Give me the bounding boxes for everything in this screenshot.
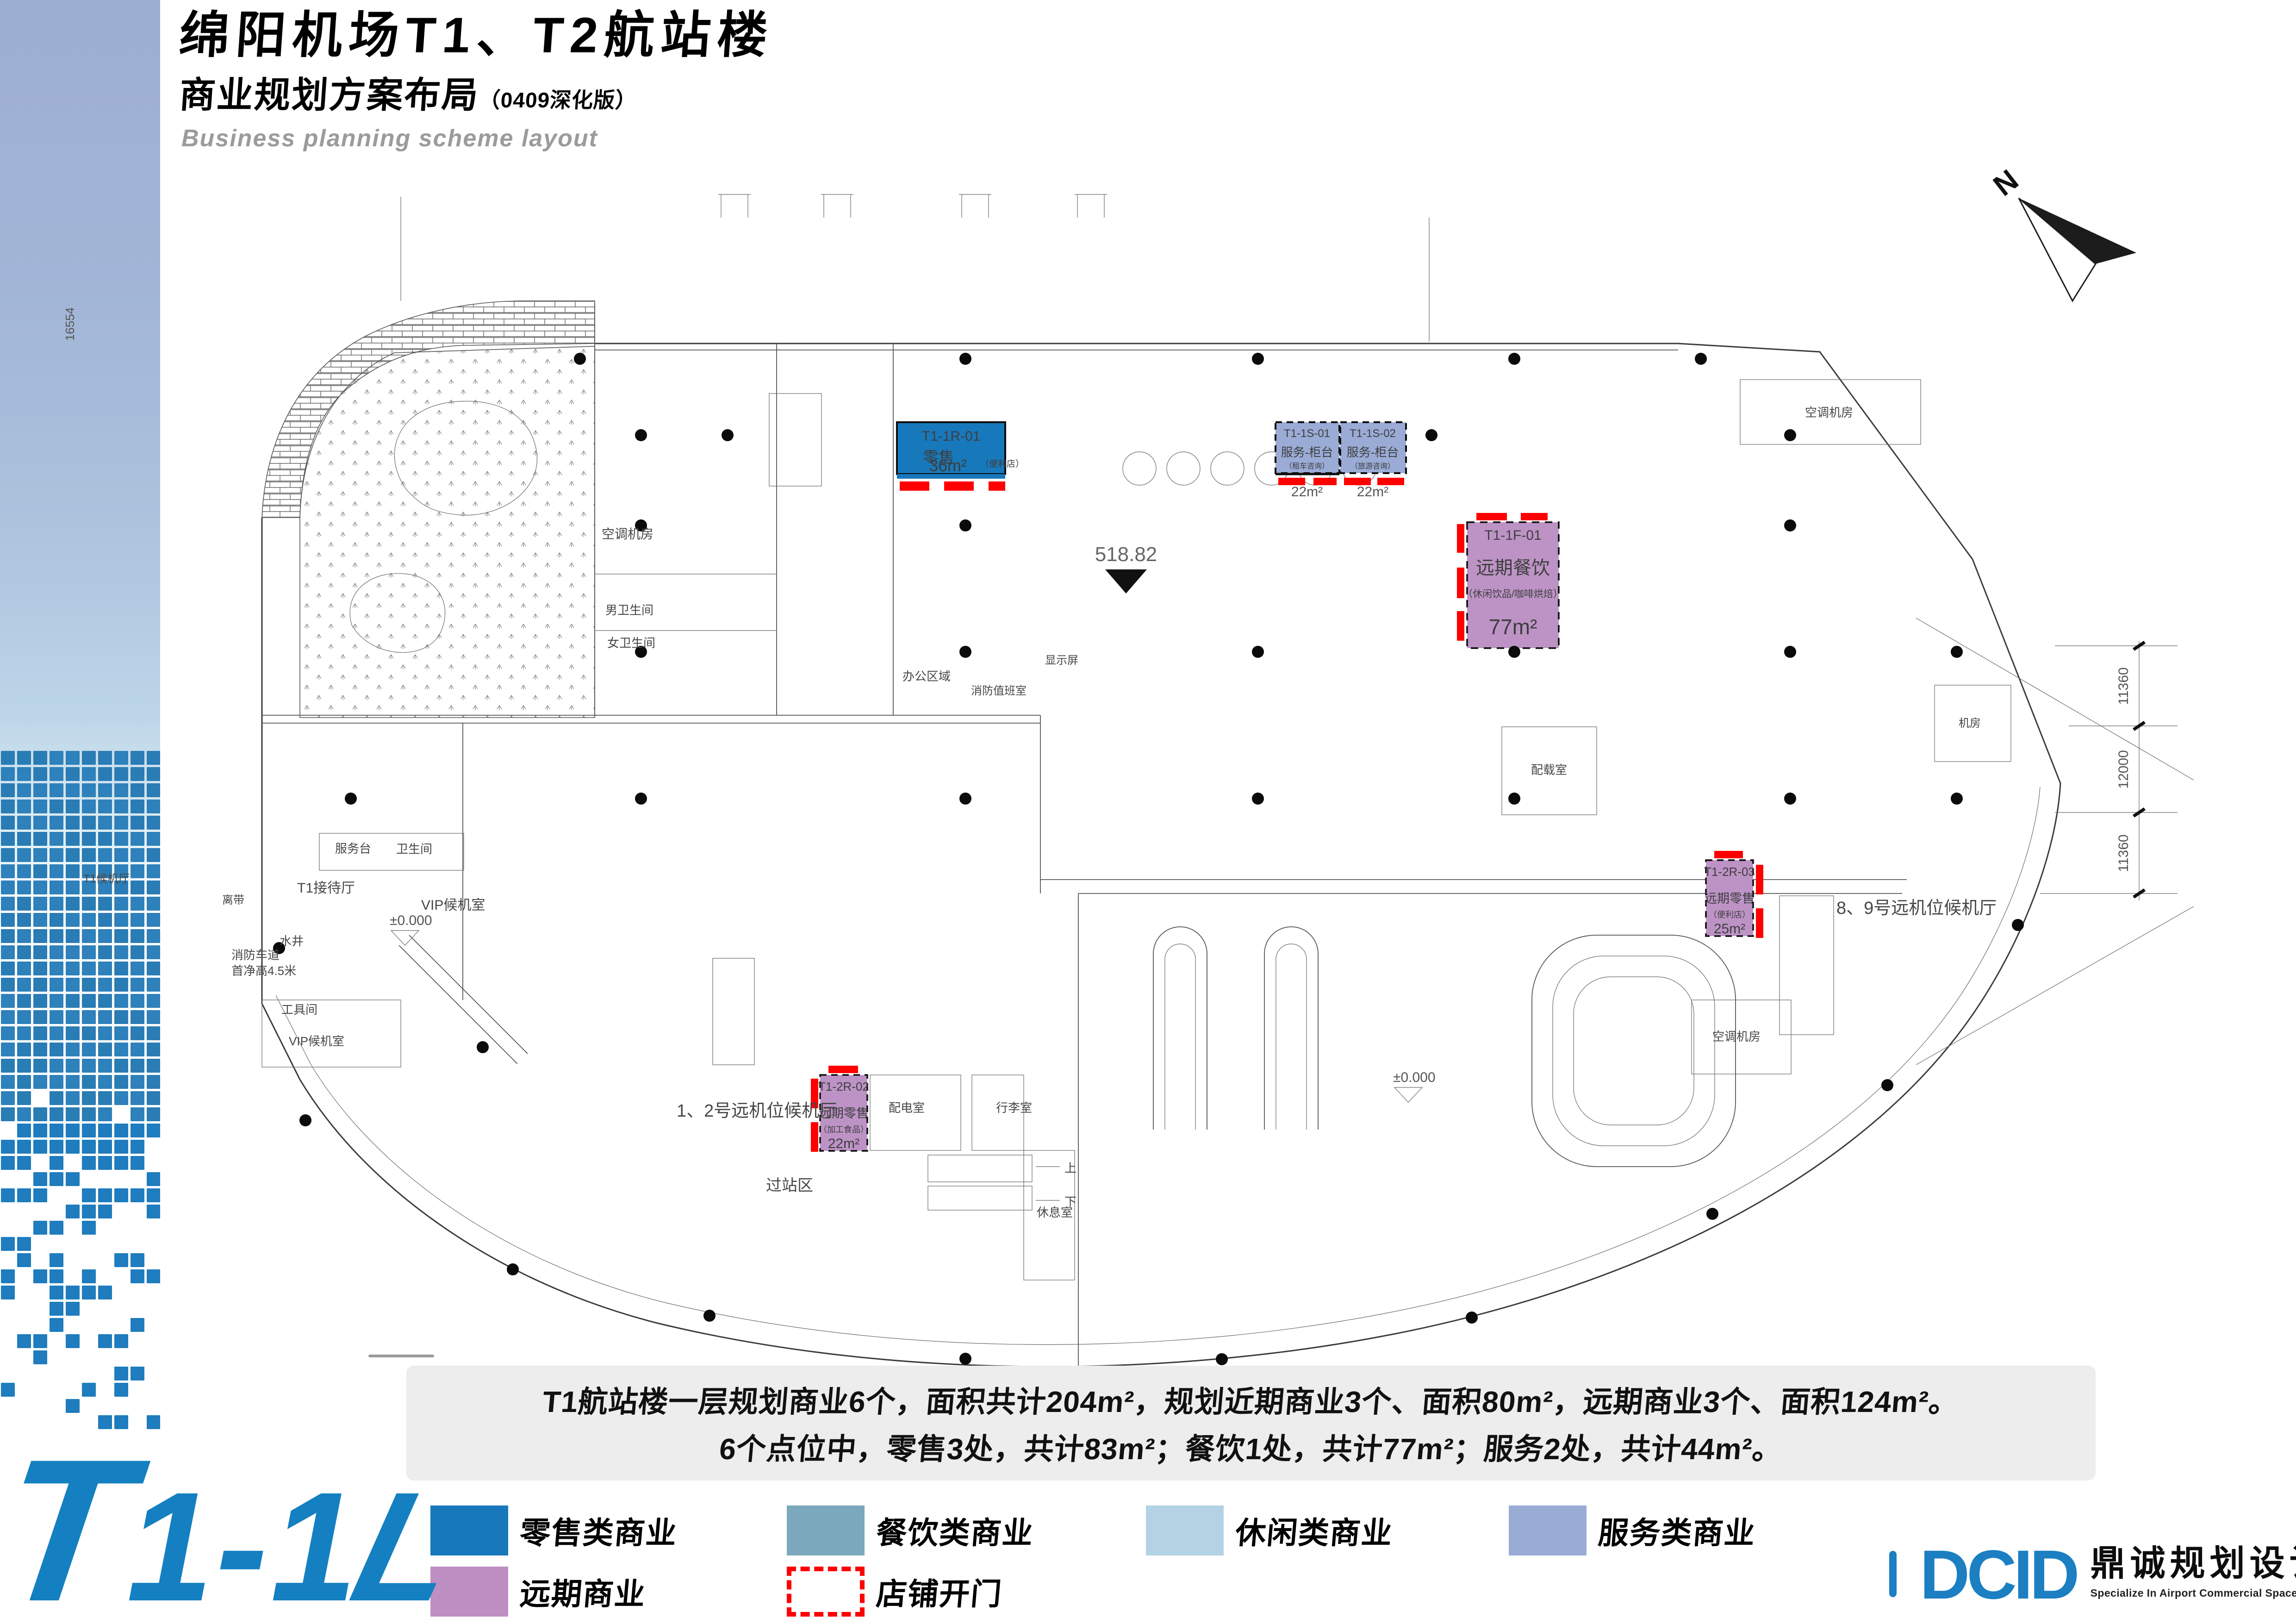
svg-text:离带: 离带 — [222, 894, 244, 906]
sheet-code: T1-1L — [3, 1429, 454, 1624]
svg-text:远期餐饮: 远期餐饮 — [1476, 558, 1550, 578]
svg-text:8、9号远机位候机厅: 8、9号远机位候机厅 — [1836, 899, 1997, 918]
shop-T1-2R-03: T1-2R-03 远期零售 （便利店） 25m² — [1704, 851, 1763, 938]
north-arrow-icon: N — [1987, 163, 2136, 301]
shop-T1-1S-01: T1-1S-01 服务-柜台 （租车咨询） 22m² — [1276, 422, 1339, 500]
legend-item-door-open: 店铺开门 — [787, 1567, 1002, 1617]
svg-text:（便利店）: （便利店） — [1709, 910, 1750, 919]
escalator-up — [928, 1155, 1032, 1182]
dcid-logo: DCID 鼎诚规划设计 Specialize In Airport Commer… — [1920, 1545, 2296, 1605]
svg-text:首净高4.5米: 首净高4.5米 — [231, 964, 296, 978]
summary-line-1: T1航站楼一层规划商业6个，面积共计204m²，规划近期商业3个、面积80m²，… — [541, 1378, 1961, 1421]
svg-text:12000: 12000 — [2116, 750, 2131, 788]
baggage-carousel — [1532, 935, 1736, 1167]
svg-text:配载室: 配载室 — [1531, 763, 1567, 777]
stairs — [769, 394, 821, 486]
svg-text:T1-2R-02: T1-2R-02 — [818, 1080, 869, 1093]
svg-text:T1接待厅: T1接待厅 — [297, 881, 355, 896]
svg-text:机房: 机房 — [1959, 717, 1981, 730]
svg-text:VIP候机室: VIP候机室 — [421, 898, 485, 913]
svg-text:±0.000: ±0.000 — [390, 913, 432, 928]
svg-text:T1-1S-02: T1-1S-02 — [1350, 427, 1396, 440]
svg-text:16554: 16554 — [63, 307, 77, 341]
svg-text:男卫生间: 男卫生间 — [605, 603, 653, 617]
svg-text:1、2号远机位候机厅: 1、2号远机位候机厅 — [677, 1101, 837, 1121]
svg-text:女卫生间: 女卫生间 — [607, 636, 655, 650]
landscape-garden — [262, 301, 595, 718]
svg-text:11360: 11360 — [2116, 667, 2131, 705]
svg-text:（休闲饮品/咖啡烘焙）: （休闲饮品/咖啡烘焙） — [1463, 589, 1563, 600]
svg-text:服务台: 服务台 — [335, 842, 371, 856]
svg-text:T1-2R-03: T1-2R-03 — [1704, 865, 1755, 879]
svg-text:VIP候机室: VIP候机室 — [289, 1034, 344, 1048]
svg-text:远期零售: 远期零售 — [1705, 892, 1755, 906]
svg-text:空调机房: 空调机房 — [602, 527, 653, 541]
svg-text:办公区域: 办公区域 — [902, 669, 951, 683]
legend-item-dining: 餐饮类商业 — [787, 1505, 1034, 1555]
svg-text:卫生间: 卫生间 — [396, 842, 432, 856]
page: 绵阳机场T1、T2航站楼 商业规划方案布局（0409深化版） Business … — [0, 0, 2296, 1624]
svg-text:T1-1R-01: T1-1R-01 — [922, 429, 981, 444]
door-open-swatch — [787, 1567, 865, 1617]
shop-T1-1F-01: T1-1F-01 远期餐饮 （休闲饮品/咖啡烘焙） 77m² — [1457, 513, 1563, 648]
leisure-swatch — [1146, 1505, 1224, 1555]
svg-text:下: 下 — [1064, 1195, 1076, 1209]
logo-en: Specialize In Airport Commercial Space P… — [2091, 1587, 2296, 1599]
svg-text:（租车咨询）: （租车咨询） — [1285, 462, 1329, 470]
svg-text:25m²: 25m² — [1714, 921, 1745, 937]
svg-text:服务-柜台: 服务-柜台 — [1347, 445, 1399, 459]
svg-text:（便利店）: （便利店） — [980, 459, 1024, 469]
svg-text:消防值班室: 消防值班室 — [971, 685, 1027, 697]
legend-item-retail: 零售类商业 — [430, 1505, 678, 1555]
svg-text:配电室: 配电室 — [889, 1101, 925, 1115]
svg-text:过站区: 过站区 — [766, 1177, 813, 1194]
legend-item-leisure: 休闲类商业 — [1146, 1505, 1393, 1555]
shop-T1-1R-01: T1-1R-01 零售 （便利店） 36m² — [897, 422, 1024, 491]
svg-text:T1-1S-01: T1-1S-01 — [1284, 427, 1330, 440]
stairs — [713, 958, 754, 1065]
escalator-down — [928, 1186, 1032, 1210]
svg-text:空调机房: 空调机房 — [1805, 406, 1853, 419]
svg-text:上: 上 — [1064, 1161, 1076, 1175]
summary-line-2: 6个点位中，零售3处，共计83m²；餐饮1处，共计77m²；服务2处，共计44m… — [718, 1425, 1785, 1468]
svg-text:22m²: 22m² — [1291, 484, 1323, 500]
svg-text:（加工食品）: （加工食品） — [819, 1125, 869, 1134]
svg-text:77m²: 77m² — [1489, 615, 1537, 639]
door-marks — [900, 481, 1005, 491]
svg-text:空调机房: 空调机房 — [1712, 1030, 1761, 1043]
svg-text:显示屏: 显示屏 — [1045, 654, 1078, 667]
legend-item-future: 远期商业 — [430, 1567, 646, 1617]
svg-text:N: N — [1987, 163, 2024, 202]
service-swatch — [1509, 1505, 1587, 1555]
svg-text:22m²: 22m² — [1357, 484, 1388, 500]
svg-text:T1-1F-01: T1-1F-01 — [1484, 528, 1541, 543]
queue-lanes — [1153, 927, 1318, 1130]
svg-text:T1候机厅: T1候机厅 — [83, 873, 130, 885]
svg-text:±0.000: ±0.000 — [1393, 1070, 1436, 1085]
svg-text:36m²: 36m² — [929, 456, 967, 475]
svg-text:22m²: 22m² — [828, 1136, 859, 1151]
svg-text:行李室: 行李室 — [996, 1101, 1032, 1115]
shop-T1-1S-02: T1-1S-02 服务-柜台 （旅游咨询） 22m² — [1340, 422, 1406, 500]
dcid-logo-mark: DCID — [1920, 1545, 2077, 1605]
svg-text:消防车道: 消防车道 — [231, 948, 280, 962]
svg-text:518.82: 518.82 — [1095, 543, 1157, 566]
stairs — [1780, 896, 1834, 1035]
svg-text:11360: 11360 — [2116, 834, 2131, 872]
summary-box: T1航站楼一层规划商业6个，面积共计204m²，规划近期商业3个、面积80m²，… — [406, 1366, 2096, 1480]
svg-text:（旅游咨询）: （旅游咨询） — [1350, 462, 1395, 470]
accent-bar — [1889, 1551, 1897, 1597]
logo-cn: 鼎诚规划设计 — [2091, 1545, 2296, 1582]
svg-text:工具间: 工具间 — [281, 1003, 317, 1017]
legend-item-service: 服务类商业 — [1509, 1505, 1756, 1555]
summary-tab — [368, 1355, 434, 1357]
svg-text:水井: 水井 — [280, 934, 304, 948]
dining-swatch — [787, 1505, 865, 1555]
svg-text:服务-柜台: 服务-柜台 — [1281, 445, 1333, 459]
